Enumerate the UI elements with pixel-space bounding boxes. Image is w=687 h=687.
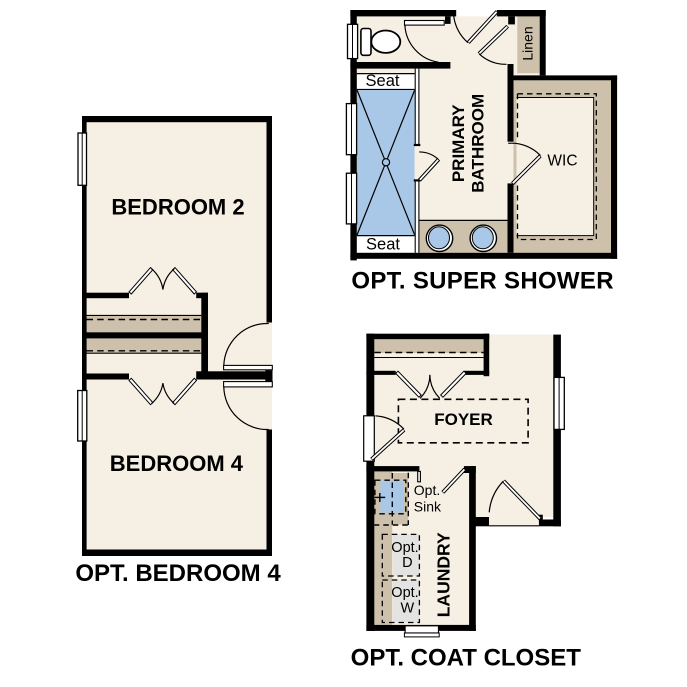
svg-text:Opt.: Opt. bbox=[391, 585, 418, 601]
svg-text:Sink: Sink bbox=[414, 499, 442, 515]
svg-text:Linen: Linen bbox=[520, 26, 536, 60]
svg-text:OPT. COAT CLOSET: OPT. COAT CLOSET bbox=[351, 645, 582, 672]
svg-text:D: D bbox=[402, 555, 412, 571]
svg-text:LAUNDRY: LAUNDRY bbox=[434, 532, 454, 617]
svg-text:FOYER: FOYER bbox=[434, 410, 493, 429]
svg-text:PRIMARY: PRIMARY bbox=[449, 104, 468, 182]
svg-text:BEDROOM 2: BEDROOM 2 bbox=[111, 195, 244, 220]
svg-text:Seat: Seat bbox=[366, 236, 400, 254]
svg-text:Opt.: Opt. bbox=[414, 482, 440, 498]
svg-text:BATHROOM: BATHROOM bbox=[468, 94, 487, 193]
svg-text:Seat: Seat bbox=[366, 72, 400, 90]
svg-text:Opt.: Opt. bbox=[391, 540, 418, 556]
svg-text:BEDROOM 4: BEDROOM 4 bbox=[110, 451, 244, 476]
svg-text:W: W bbox=[401, 600, 415, 616]
svg-text:OPT. BEDROOM 4: OPT. BEDROOM 4 bbox=[75, 560, 281, 587]
svg-text:WIC: WIC bbox=[547, 153, 577, 170]
svg-text:OPT. SUPER SHOWER: OPT. SUPER SHOWER bbox=[351, 267, 613, 294]
